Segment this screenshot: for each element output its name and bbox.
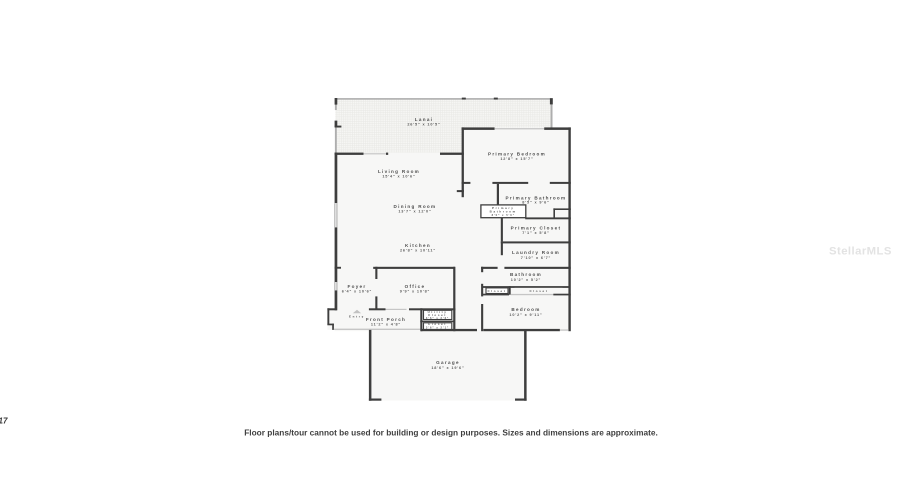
svg-text:10'2" x 5'2": 10'2" x 5'2": [511, 278, 541, 282]
svg-text:6'4" x 10'6": 6'4" x 10'6": [342, 290, 372, 294]
svg-text:Living Room: Living Room: [378, 169, 420, 174]
svg-text:Front Porch: Front Porch: [366, 317, 406, 322]
svg-text:Garage: Garage: [436, 360, 460, 365]
svg-text:Floor plans/tour cannot be use: Floor plans/tour cannot be used for buil…: [244, 428, 658, 438]
svg-text:Laundry Room: Laundry Room: [512, 250, 560, 255]
svg-text:Primary Closet: Primary Closet: [511, 225, 562, 230]
svg-text:12'8" x 15'7": 12'8" x 15'7": [500, 157, 533, 161]
svg-text:7'1" x 5'8": 7'1" x 5'8": [522, 231, 549, 235]
svg-text:11'2" x 4'8": 11'2" x 4'8": [371, 323, 401, 327]
svg-text:8'0" x 5'0": 8'0" x 5'0": [492, 213, 515, 217]
svg-text:3'6" x 2'6": 3'6" x 2'6": [426, 316, 449, 320]
svg-text:Closet: Closet: [487, 289, 506, 293]
svg-text:26'8" x 10'11": 26'8" x 10'11": [400, 249, 436, 253]
svg-text:13'7" x 12'0": 13'7" x 12'0": [398, 210, 431, 214]
svg-text:8'5" x 9'6": 8'5" x 9'6": [522, 201, 549, 205]
svg-text:18'6" x 19'6": 18'6" x 19'6": [431, 366, 464, 370]
svg-text:StellarMLS: StellarMLS: [829, 246, 892, 258]
svg-text:Foyer: Foyer: [347, 284, 366, 289]
svg-text:9'9" x 10'8": 9'9" x 10'8": [400, 290, 430, 294]
svg-text:Bedroom: Bedroom: [511, 307, 540, 312]
svg-text:Entry: Entry: [349, 314, 365, 318]
svg-text:3'6" x 2'1": 3'6" x 2'1": [426, 325, 449, 329]
svg-text:Lanai: Lanai: [415, 117, 434, 122]
svg-text:Office: Office: [405, 284, 426, 289]
svg-text:Dining Room: Dining Room: [394, 204, 437, 209]
svg-text:17: 17: [0, 417, 8, 426]
svg-text:7'10" x 6'7": 7'10" x 6'7": [521, 256, 551, 260]
svg-text:Bathroom: Bathroom: [490, 209, 517, 213]
svg-text:26'5" x 10'5": 26'5" x 10'5": [407, 123, 440, 127]
svg-text:15'4" x 10'6": 15'4" x 10'6": [382, 175, 415, 179]
svg-text:Bathroom: Bathroom: [510, 272, 542, 277]
svg-text:Kitchen: Kitchen: [405, 243, 431, 248]
svg-text:Closet: Closet: [529, 289, 548, 293]
svg-text:Primary Bathroom: Primary Bathroom: [506, 195, 567, 200]
svg-text:Primary Bedroom: Primary Bedroom: [488, 151, 546, 156]
svg-text:10'2" x 9'11": 10'2" x 9'11": [509, 313, 542, 317]
